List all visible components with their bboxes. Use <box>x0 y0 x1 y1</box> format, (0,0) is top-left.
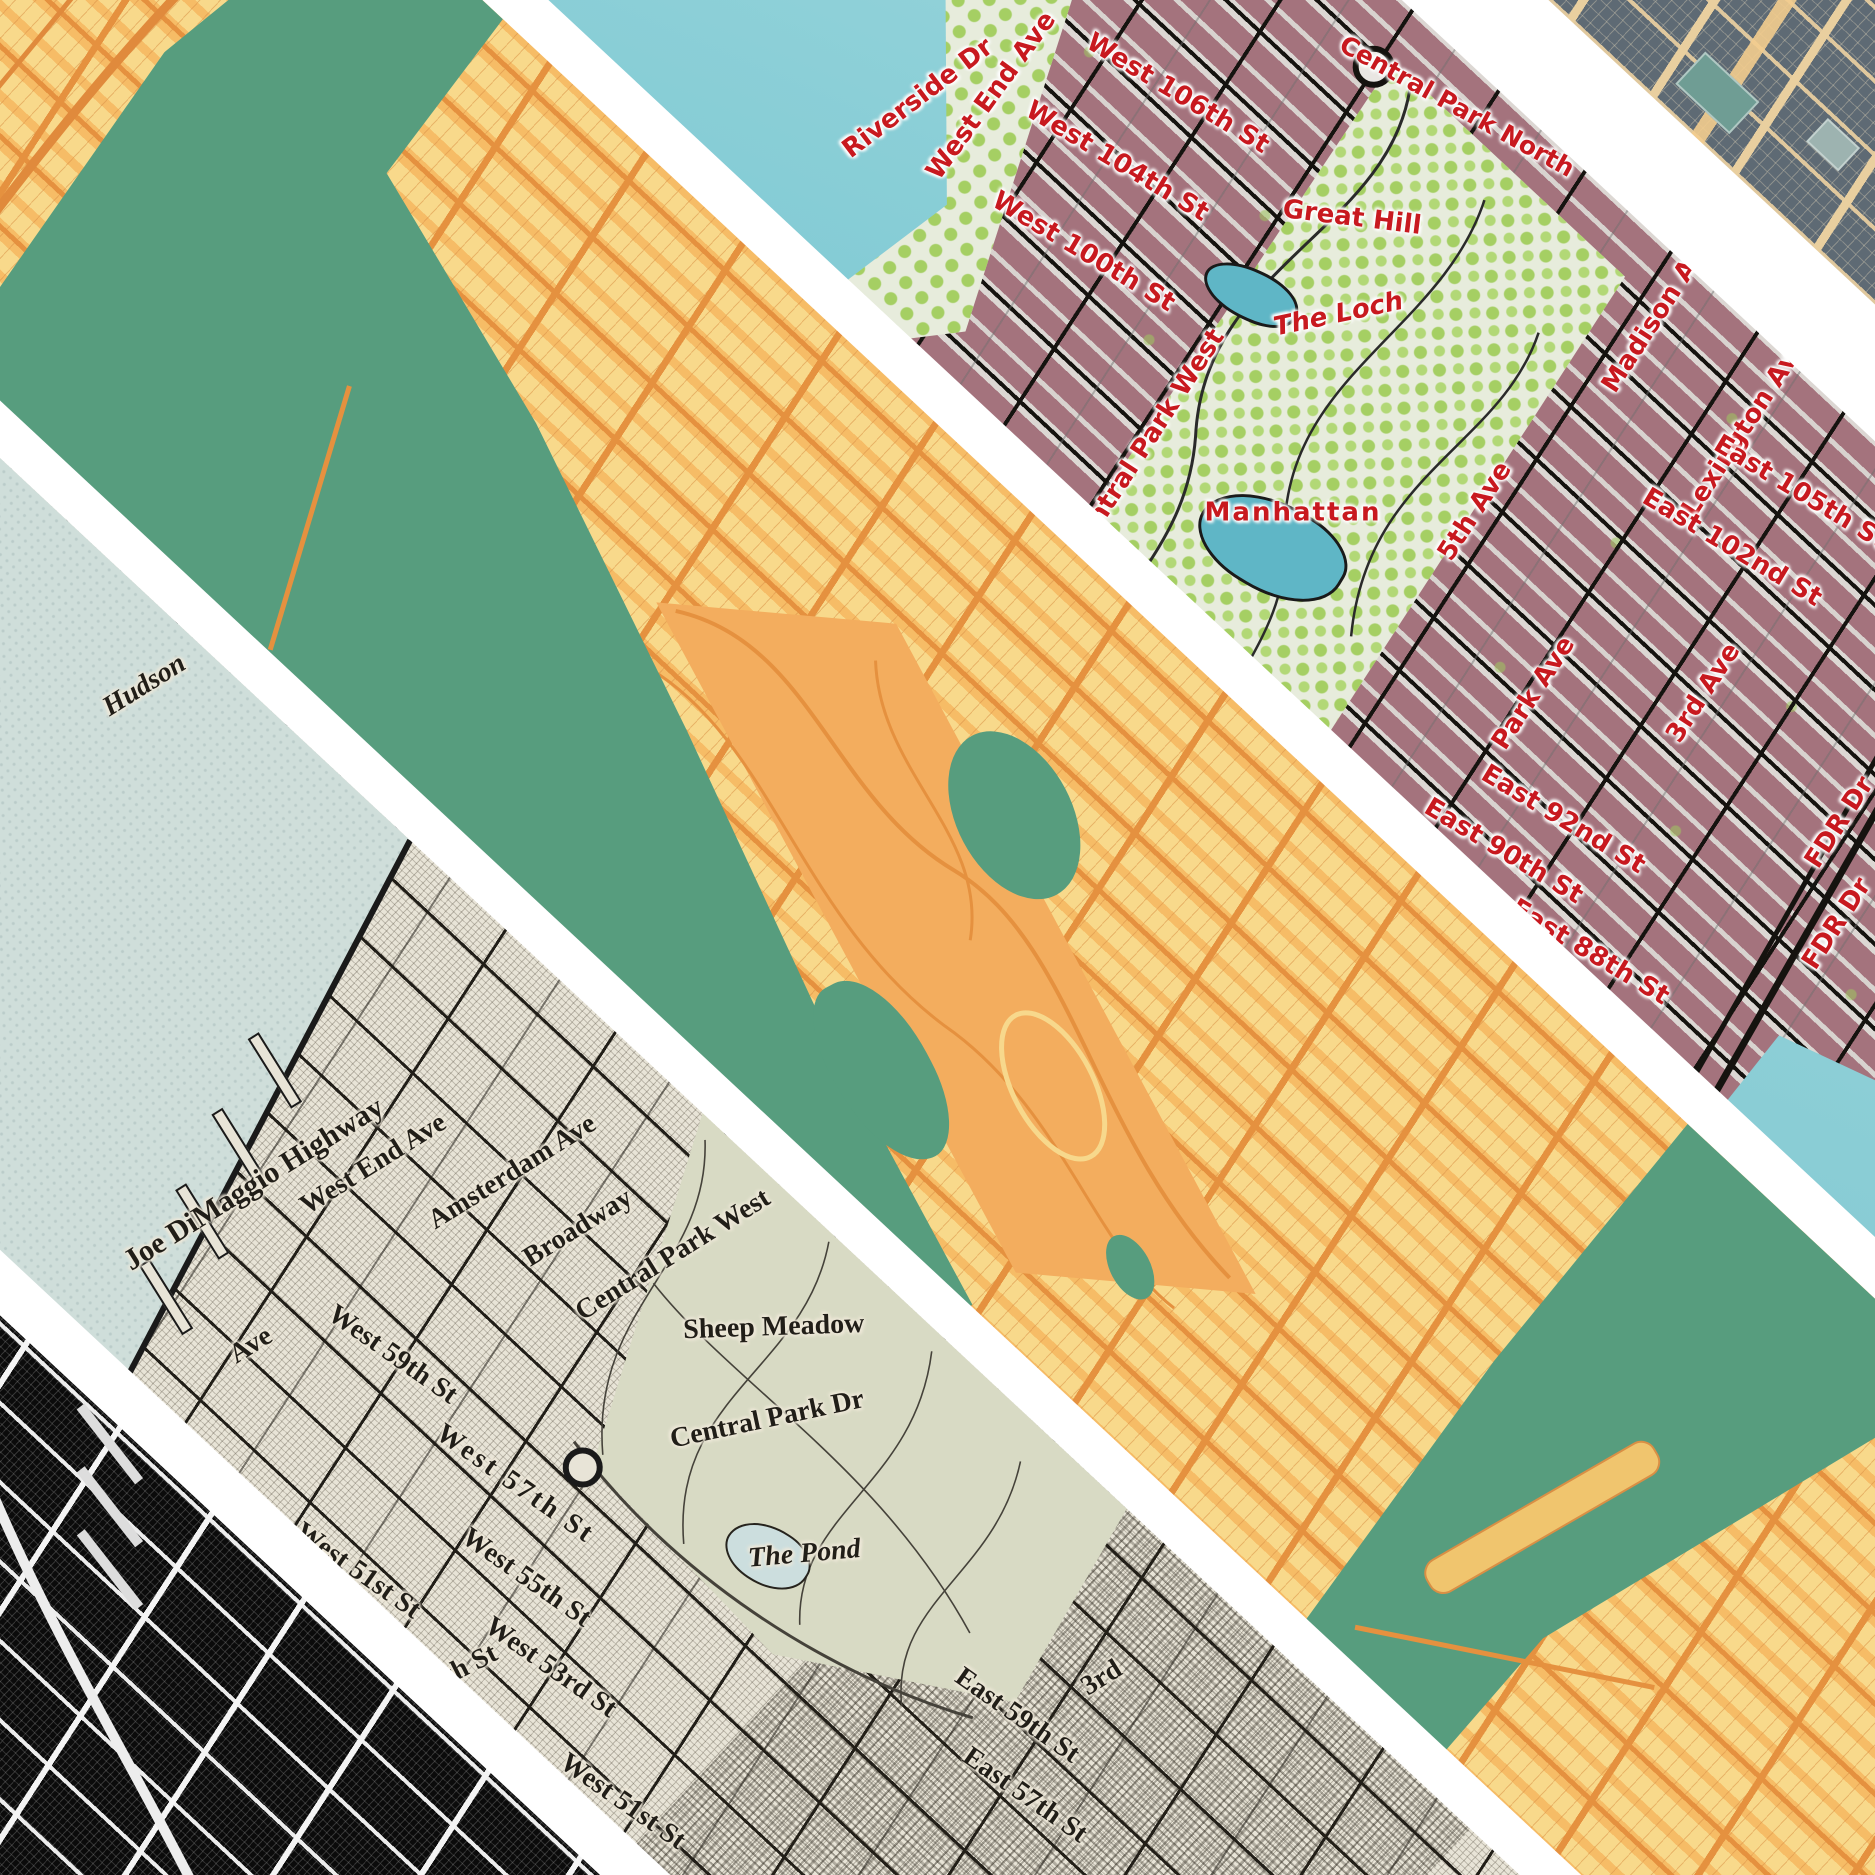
park-place-label: Sheep Meadow <box>683 1308 865 1346</box>
borough-label: Manhattan <box>1205 497 1382 527</box>
map-style-collage: Riverside Dr West End Ave West 106th St … <box>0 0 1875 1875</box>
